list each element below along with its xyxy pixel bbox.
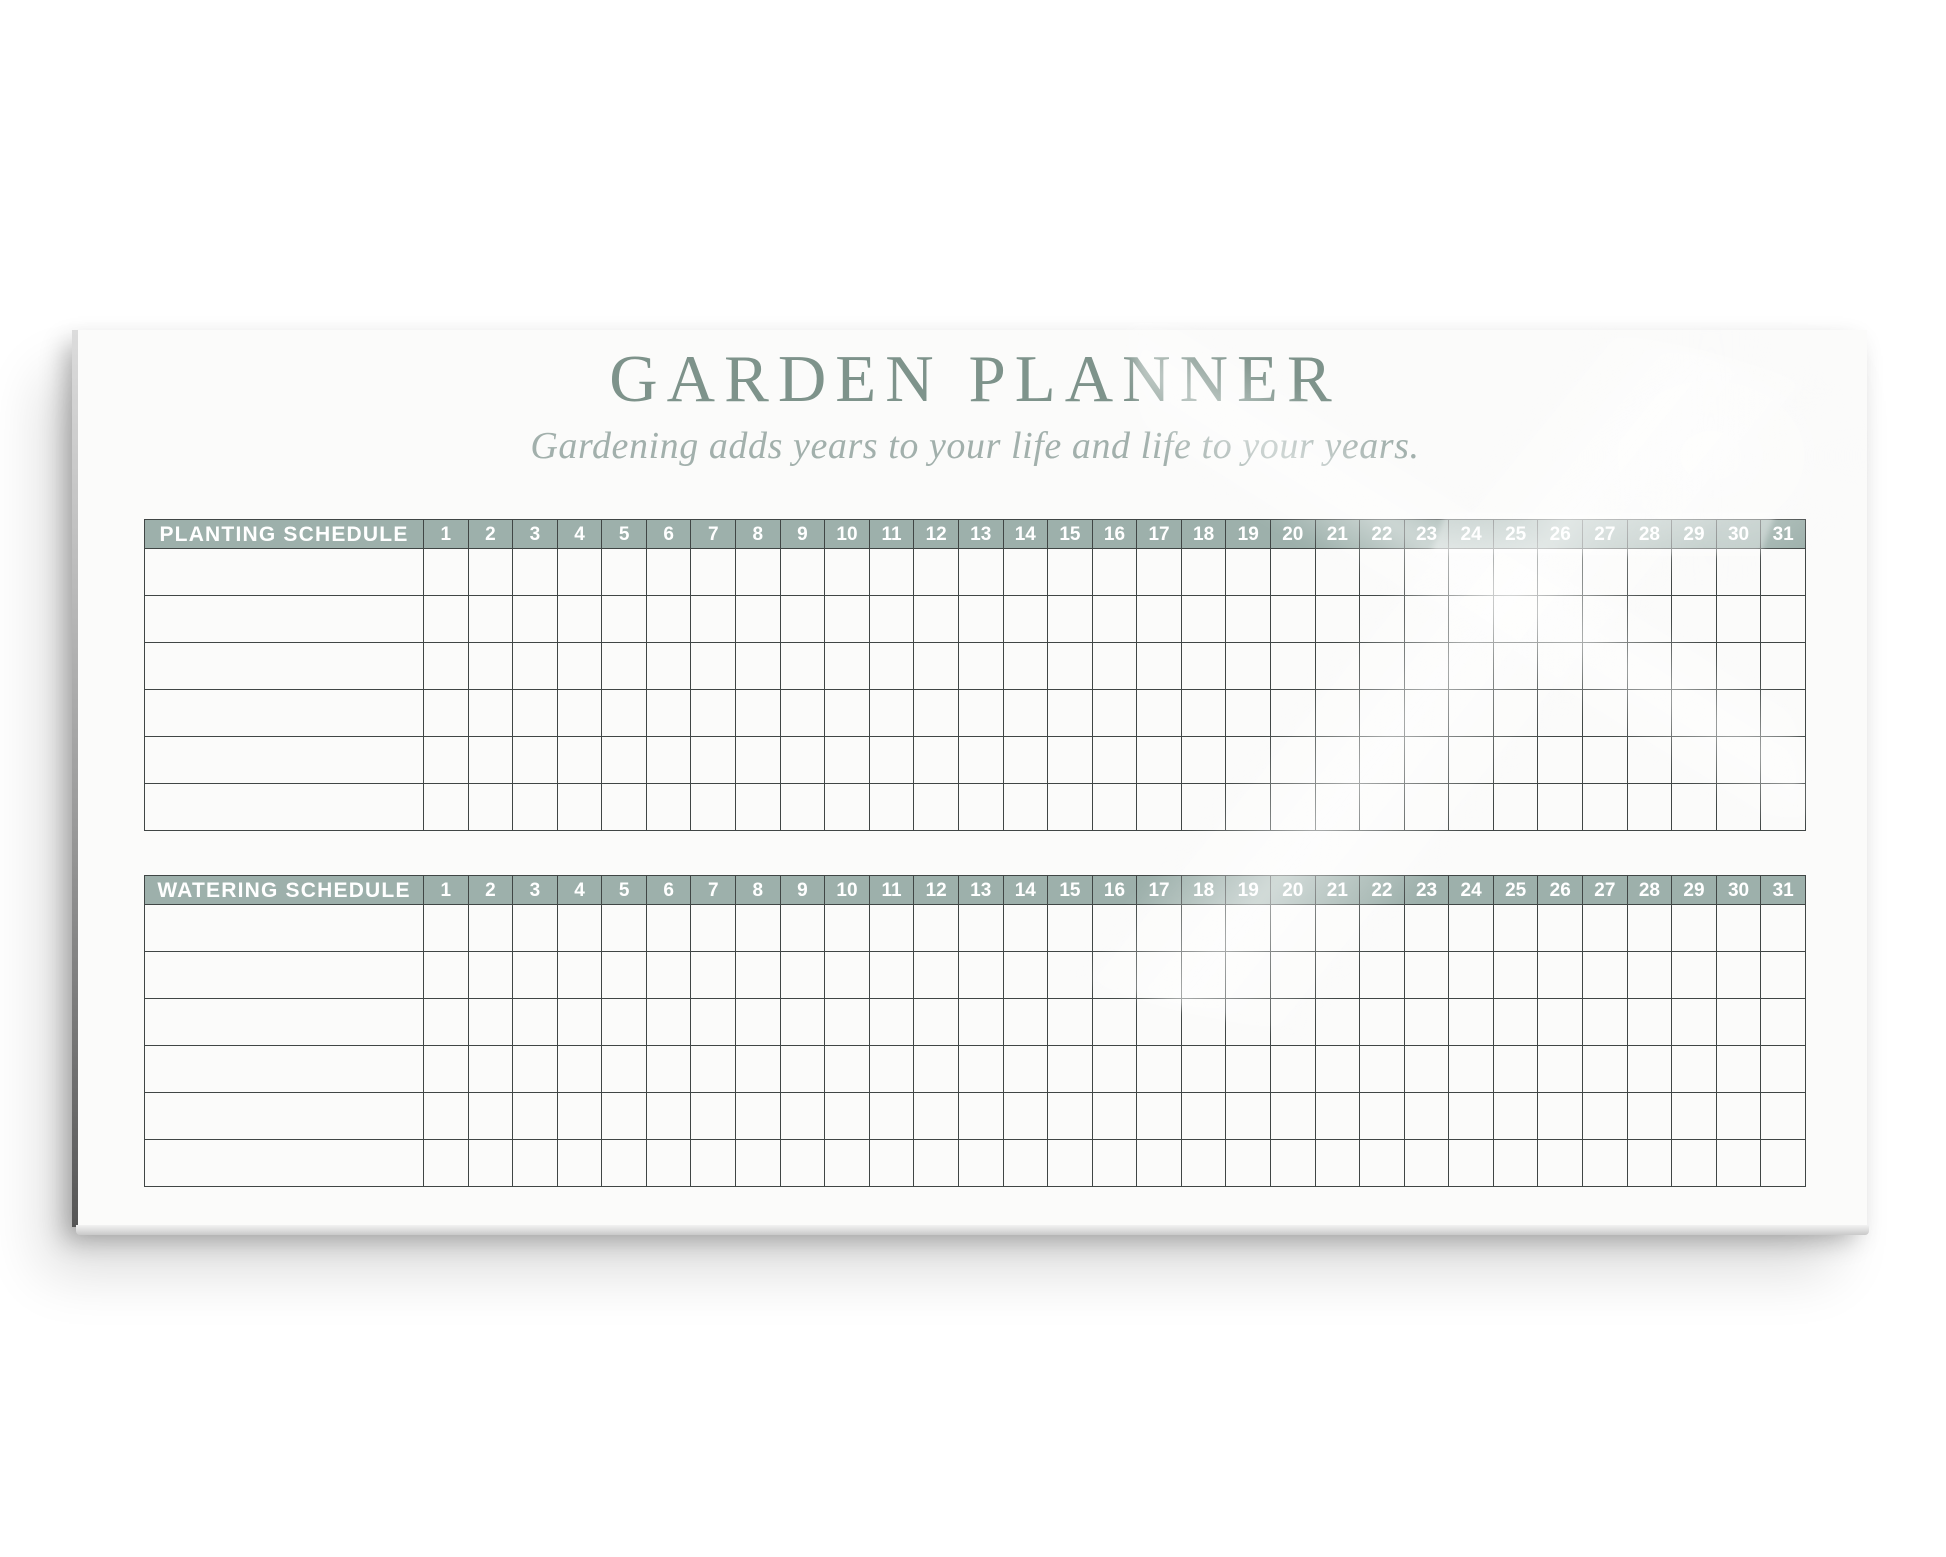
day-cell — [1092, 999, 1137, 1046]
day-cell — [1672, 784, 1717, 831]
day-cell — [1048, 999, 1093, 1046]
day-cell — [914, 690, 959, 737]
day-cell — [958, 1046, 1003, 1093]
day-header-cell: 12 — [914, 520, 959, 549]
day-cell — [1092, 690, 1137, 737]
day-cell — [1627, 643, 1672, 690]
day-cell — [1048, 596, 1093, 643]
board-heading: GARDEN PLANNER Gardening adds years to y… — [144, 344, 1806, 468]
day-cell — [1761, 643, 1806, 690]
day-cell — [1761, 999, 1806, 1046]
day-cell — [424, 784, 469, 831]
day-cell — [468, 690, 513, 737]
day-cell — [602, 690, 647, 737]
day-cell — [1137, 999, 1182, 1046]
day-header-cell: 17 — [1137, 876, 1182, 905]
day-cell — [1404, 952, 1449, 999]
day-cell — [1538, 1140, 1583, 1187]
day-header-cell: 26 — [1538, 876, 1583, 905]
day-cell — [513, 952, 558, 999]
day-cell — [1493, 549, 1538, 596]
day-cell — [1404, 690, 1449, 737]
day-cell — [736, 784, 781, 831]
day-cell — [1761, 952, 1806, 999]
day-header-cell: 6 — [646, 520, 691, 549]
day-cell — [1449, 905, 1494, 952]
day-cell — [1404, 999, 1449, 1046]
watering-schedule-table: WATERING SCHEDULE12345678910111213141516… — [144, 875, 1806, 1187]
schedule-row — [145, 952, 1806, 999]
day-cell — [1716, 690, 1761, 737]
day-cell — [1270, 549, 1315, 596]
day-cell — [1226, 999, 1271, 1046]
day-cell — [1003, 737, 1048, 784]
day-cell — [1538, 549, 1583, 596]
day-header-cell: 23 — [1404, 520, 1449, 549]
schedule-row — [145, 1046, 1806, 1093]
day-cell — [691, 1046, 736, 1093]
day-cell — [1449, 643, 1494, 690]
day-cell — [1761, 549, 1806, 596]
day-cell — [1761, 1046, 1806, 1093]
day-header-cell: 25 — [1493, 876, 1538, 905]
day-cell — [736, 1093, 781, 1140]
day-cell — [1137, 1046, 1182, 1093]
day-cell — [780, 905, 825, 952]
day-cell — [1538, 999, 1583, 1046]
day-cell — [1493, 1093, 1538, 1140]
day-cell — [1315, 784, 1360, 831]
day-cell — [557, 905, 602, 952]
day-header-cell: 31 — [1761, 520, 1806, 549]
day-header-cell: 31 — [1761, 876, 1806, 905]
day-cell — [1583, 690, 1628, 737]
day-header-cell: 28 — [1627, 520, 1672, 549]
day-cell — [1449, 549, 1494, 596]
day-header-cell: 13 — [958, 876, 1003, 905]
day-header-cell: 27 — [1583, 520, 1628, 549]
day-header-cell: 23 — [1404, 876, 1449, 905]
day-cell — [646, 999, 691, 1046]
day-cell — [958, 784, 1003, 831]
day-header-cell: 10 — [825, 876, 870, 905]
day-cell — [1360, 1093, 1405, 1140]
day-cell — [736, 999, 781, 1046]
day-cell — [691, 643, 736, 690]
day-cell — [557, 784, 602, 831]
day-cell — [1181, 1140, 1226, 1187]
day-cell — [1137, 643, 1182, 690]
day-cell — [1315, 1046, 1360, 1093]
day-cell — [1048, 690, 1093, 737]
day-cell — [958, 1093, 1003, 1140]
day-cell — [646, 1140, 691, 1187]
day-cell — [780, 1093, 825, 1140]
day-cell — [780, 690, 825, 737]
day-cell — [1583, 596, 1628, 643]
planting-schedule-table: PLANTING SCHEDULE12345678910111213141516… — [144, 519, 1806, 831]
day-cell — [1493, 643, 1538, 690]
day-header-cell: 5 — [602, 520, 647, 549]
day-cell — [869, 690, 914, 737]
day-cell — [468, 596, 513, 643]
day-cell — [1627, 1140, 1672, 1187]
day-header-cell: 5 — [602, 876, 647, 905]
day-cell — [1270, 905, 1315, 952]
day-cell — [1583, 784, 1628, 831]
schedule-row — [145, 596, 1806, 643]
day-cell — [1003, 784, 1048, 831]
day-cell — [1583, 549, 1628, 596]
day-cell — [1627, 784, 1672, 831]
day-cell — [1716, 549, 1761, 596]
day-cell — [602, 1046, 647, 1093]
day-cell — [602, 952, 647, 999]
day-cell — [1048, 1140, 1093, 1187]
day-cell — [646, 1093, 691, 1140]
day-cell — [1003, 643, 1048, 690]
day-cell — [1583, 1140, 1628, 1187]
day-cell — [1181, 643, 1226, 690]
day-cell — [1672, 549, 1717, 596]
day-cell — [1315, 952, 1360, 999]
day-cell — [825, 784, 870, 831]
day-cell — [780, 737, 825, 784]
day-cell — [1627, 1093, 1672, 1140]
day-cell — [513, 1093, 558, 1140]
day-cell — [1003, 690, 1048, 737]
day-cell — [1181, 549, 1226, 596]
day-cell — [1449, 784, 1494, 831]
day-cell — [1092, 643, 1137, 690]
day-cell — [557, 690, 602, 737]
day-cell — [958, 690, 1003, 737]
day-header-cell: 16 — [1092, 876, 1137, 905]
day-cell — [513, 999, 558, 1046]
day-cell — [825, 737, 870, 784]
day-cell — [468, 905, 513, 952]
day-cell — [424, 905, 469, 952]
day-cell — [1538, 1046, 1583, 1093]
day-cell — [958, 643, 1003, 690]
day-cell — [1003, 596, 1048, 643]
day-cell — [1716, 596, 1761, 643]
day-cell — [1672, 1140, 1717, 1187]
day-cell — [780, 549, 825, 596]
day-cell — [1003, 549, 1048, 596]
day-cell — [1315, 643, 1360, 690]
day-cell — [1538, 905, 1583, 952]
day-cell — [914, 643, 959, 690]
day-header-cell: 1 — [424, 520, 469, 549]
day-cell — [1181, 999, 1226, 1046]
day-cell — [1538, 952, 1583, 999]
day-cell — [1226, 596, 1271, 643]
day-header-cell: 3 — [513, 876, 558, 905]
day-cell — [869, 1093, 914, 1140]
day-cell — [1583, 643, 1628, 690]
schedule-row — [145, 549, 1806, 596]
day-cell — [1404, 596, 1449, 643]
item-name-cell — [145, 596, 424, 643]
item-name-cell — [145, 905, 424, 952]
day-cell — [1137, 1093, 1182, 1140]
day-cell — [1092, 737, 1137, 784]
day-cell — [869, 905, 914, 952]
day-header-cell: 30 — [1716, 520, 1761, 549]
day-cell — [646, 952, 691, 999]
day-cell — [1181, 596, 1226, 643]
day-cell — [691, 1093, 736, 1140]
day-cell — [1538, 643, 1583, 690]
day-cell — [1449, 1046, 1494, 1093]
day-cell — [914, 1046, 959, 1093]
day-cell — [736, 905, 781, 952]
day-cell — [1538, 784, 1583, 831]
day-cell — [736, 1046, 781, 1093]
day-cell — [513, 690, 558, 737]
day-cell — [1493, 905, 1538, 952]
day-cell — [1137, 737, 1182, 784]
day-cell — [1716, 952, 1761, 999]
day-cell — [602, 643, 647, 690]
day-cell — [424, 1140, 469, 1187]
day-cell — [1048, 643, 1093, 690]
day-cell — [1048, 737, 1093, 784]
day-cell — [869, 784, 914, 831]
day-header-cell: 24 — [1449, 876, 1494, 905]
day-cell — [1672, 1093, 1717, 1140]
day-cell — [1449, 999, 1494, 1046]
day-header-cell: 26 — [1538, 520, 1583, 549]
day-cell — [646, 784, 691, 831]
day-cell — [1360, 905, 1405, 952]
day-cell — [1761, 690, 1806, 737]
day-cell — [1716, 643, 1761, 690]
day-cell — [1761, 1140, 1806, 1187]
day-cell — [1048, 1046, 1093, 1093]
day-cell — [1181, 905, 1226, 952]
day-header-cell: 2 — [468, 876, 513, 905]
schedule-row — [145, 1093, 1806, 1140]
day-header-cell: 19 — [1226, 876, 1271, 905]
day-header-cell: 21 — [1315, 876, 1360, 905]
day-cell — [1672, 999, 1717, 1046]
day-cell — [914, 737, 959, 784]
day-cell — [780, 999, 825, 1046]
day-cell — [914, 549, 959, 596]
day-cell — [424, 596, 469, 643]
day-cell — [468, 952, 513, 999]
day-cell — [1404, 905, 1449, 952]
day-cell — [468, 1093, 513, 1140]
schedule-row — [145, 690, 1806, 737]
day-cell — [1360, 737, 1405, 784]
day-cell — [1538, 596, 1583, 643]
day-header-cell: 3 — [513, 520, 558, 549]
day-cell — [602, 596, 647, 643]
day-header-cell: 14 — [1003, 520, 1048, 549]
day-cell — [825, 1140, 870, 1187]
day-cell — [1404, 1093, 1449, 1140]
day-header-cell: 19 — [1226, 520, 1271, 549]
day-cell — [869, 737, 914, 784]
day-cell — [691, 596, 736, 643]
day-cell — [958, 1140, 1003, 1187]
day-header-cell: 22 — [1360, 520, 1405, 549]
day-header-cell: 17 — [1137, 520, 1182, 549]
day-cell — [1048, 952, 1093, 999]
day-cell — [1226, 784, 1271, 831]
day-cell — [736, 737, 781, 784]
day-cell — [691, 549, 736, 596]
day-cell — [1315, 690, 1360, 737]
day-cell — [1449, 596, 1494, 643]
day-cell — [691, 784, 736, 831]
day-cell — [869, 549, 914, 596]
day-cell — [424, 1046, 469, 1093]
day-cell — [602, 1140, 647, 1187]
day-cell — [1137, 952, 1182, 999]
day-cell — [513, 643, 558, 690]
day-cell — [1315, 999, 1360, 1046]
day-cell — [1092, 1046, 1137, 1093]
day-cell — [557, 596, 602, 643]
day-cell — [1270, 784, 1315, 831]
item-name-cell — [145, 737, 424, 784]
day-cell — [869, 999, 914, 1046]
day-cell — [646, 596, 691, 643]
day-cell — [1226, 905, 1271, 952]
day-header-cell: 27 — [1583, 876, 1628, 905]
day-cell — [646, 643, 691, 690]
day-cell — [1761, 596, 1806, 643]
board-bottom-edge — [76, 1225, 1869, 1235]
day-cell — [958, 999, 1003, 1046]
day-header-cell: 9 — [780, 520, 825, 549]
page-title: GARDEN PLANNER — [144, 344, 1806, 414]
day-header-cell: 7 — [691, 876, 736, 905]
day-cell — [1315, 905, 1360, 952]
schedule-row — [145, 737, 1806, 784]
day-cell — [1270, 1140, 1315, 1187]
day-header-cell: 7 — [691, 520, 736, 549]
day-cell — [1270, 1046, 1315, 1093]
day-cell — [1449, 690, 1494, 737]
day-cell — [1716, 1140, 1761, 1187]
day-cell — [513, 784, 558, 831]
day-cell — [736, 690, 781, 737]
day-cell — [1181, 737, 1226, 784]
item-name-cell — [145, 1046, 424, 1093]
day-header-cell: 9 — [780, 876, 825, 905]
day-header-cell: 10 — [825, 520, 870, 549]
day-cell — [1716, 784, 1761, 831]
day-cell — [1493, 690, 1538, 737]
day-cell — [1627, 905, 1672, 952]
day-cell — [468, 549, 513, 596]
day-header-cell: 6 — [646, 876, 691, 905]
day-cell — [1360, 549, 1405, 596]
day-cell — [1048, 784, 1093, 831]
day-header-cell: 4 — [557, 876, 602, 905]
day-cell — [1493, 596, 1538, 643]
day-cell — [1315, 1093, 1360, 1140]
day-cell — [1092, 1093, 1137, 1140]
day-cell — [646, 690, 691, 737]
day-cell — [1048, 905, 1093, 952]
day-cell — [1092, 1140, 1137, 1187]
day-cell — [1270, 596, 1315, 643]
day-header-cell: 28 — [1627, 876, 1672, 905]
day-cell — [1270, 737, 1315, 784]
day-cell — [1270, 1093, 1315, 1140]
day-cell — [557, 737, 602, 784]
day-cell — [1672, 1046, 1717, 1093]
day-cell — [424, 737, 469, 784]
day-cell — [1181, 952, 1226, 999]
day-header-cell: 24 — [1449, 520, 1494, 549]
day-cell — [736, 643, 781, 690]
day-cell — [1003, 1140, 1048, 1187]
day-cell — [1449, 952, 1494, 999]
day-cell — [825, 690, 870, 737]
item-name-cell — [145, 549, 424, 596]
day-cell — [1003, 999, 1048, 1046]
day-cell — [424, 999, 469, 1046]
day-cell — [424, 952, 469, 999]
day-header-cell: 13 — [958, 520, 1003, 549]
day-cell — [424, 690, 469, 737]
schedule-row — [145, 999, 1806, 1046]
schedule-row — [145, 643, 1806, 690]
day-cell — [1226, 549, 1271, 596]
day-cell — [1226, 737, 1271, 784]
day-cell — [1627, 1046, 1672, 1093]
day-cell — [825, 999, 870, 1046]
table-title-cell: PLANTING SCHEDULE — [145, 520, 424, 549]
day-cell — [557, 1093, 602, 1140]
day-cell — [1360, 1046, 1405, 1093]
day-cell — [1226, 1093, 1271, 1140]
day-header-cell: 21 — [1315, 520, 1360, 549]
day-header-cell: 11 — [869, 876, 914, 905]
day-cell — [825, 905, 870, 952]
day-cell — [1137, 596, 1182, 643]
day-cell — [1538, 737, 1583, 784]
day-cell — [1761, 905, 1806, 952]
day-cell — [1672, 596, 1717, 643]
day-header-cell: 15 — [1048, 876, 1093, 905]
day-cell — [513, 737, 558, 784]
day-cell — [513, 905, 558, 952]
day-cell — [1716, 905, 1761, 952]
day-cell — [1627, 549, 1672, 596]
day-cell — [1360, 596, 1405, 643]
day-cell — [780, 784, 825, 831]
day-cell — [1493, 737, 1538, 784]
day-cell — [736, 1140, 781, 1187]
day-header-cell: 30 — [1716, 876, 1761, 905]
day-cell — [1404, 643, 1449, 690]
day-cell — [424, 1093, 469, 1140]
day-header-cell: 1 — [424, 876, 469, 905]
day-cell — [1092, 784, 1137, 831]
day-cell — [1270, 952, 1315, 999]
planting-schedule: PLANTING SCHEDULE12345678910111213141516… — [144, 519, 1806, 831]
day-cell — [1449, 737, 1494, 784]
day-cell — [1003, 952, 1048, 999]
